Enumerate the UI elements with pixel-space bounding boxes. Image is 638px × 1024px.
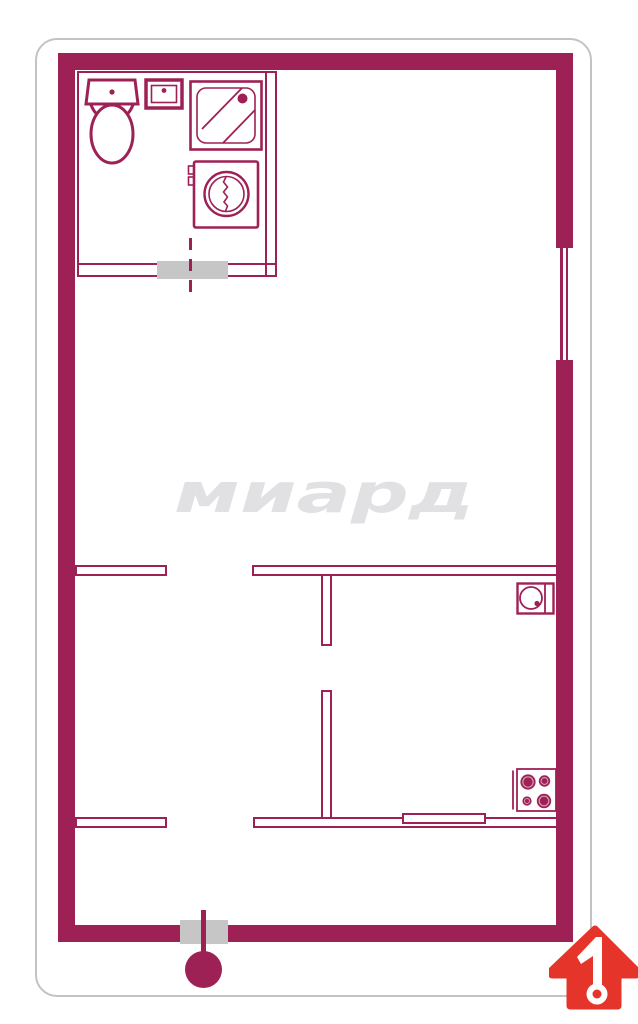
interior-wall-bottom-left bbox=[75, 817, 167, 828]
toilet-icon bbox=[83, 78, 141, 168]
watermark-text: миард bbox=[174, 462, 474, 525]
interior-wall-mid-right bbox=[252, 565, 558, 576]
stove-icon bbox=[511, 768, 557, 812]
floorplan-page: миард bbox=[0, 0, 638, 1024]
window-pane-line bbox=[566, 248, 569, 360]
window-pane-line bbox=[560, 248, 563, 360]
entrance-door-stem bbox=[201, 910, 206, 953]
interior-wall-mid-left bbox=[75, 565, 167, 576]
shower-cabin-icon bbox=[189, 80, 264, 152]
window-icon bbox=[556, 248, 573, 360]
washing-machine-icon bbox=[187, 159, 260, 230]
watermark: миард bbox=[170, 458, 490, 530]
house-arrow-up-icon bbox=[549, 922, 638, 1016]
logo-key-ring-hole bbox=[593, 990, 602, 999]
outer-wall-right bbox=[556, 53, 573, 942]
outer-wall-bottom bbox=[58, 925, 573, 942]
kitchen-sink-icon bbox=[516, 582, 555, 615]
outer-wall-left bbox=[58, 53, 75, 942]
interior-wall-vertical-upper bbox=[321, 574, 332, 646]
interior-wall-vertical-lower bbox=[321, 690, 332, 819]
entrance-marker-circle bbox=[185, 951, 222, 988]
bathroom-door-opening-icon bbox=[157, 261, 228, 279]
bathroom-wall-inner-right bbox=[265, 71, 267, 277]
sliding-door-icon bbox=[402, 813, 486, 824]
bathroom-door-swing-dashed-line bbox=[189, 238, 192, 301]
outer-wall-top bbox=[58, 53, 573, 70]
washbasin-icon bbox=[144, 78, 184, 110]
